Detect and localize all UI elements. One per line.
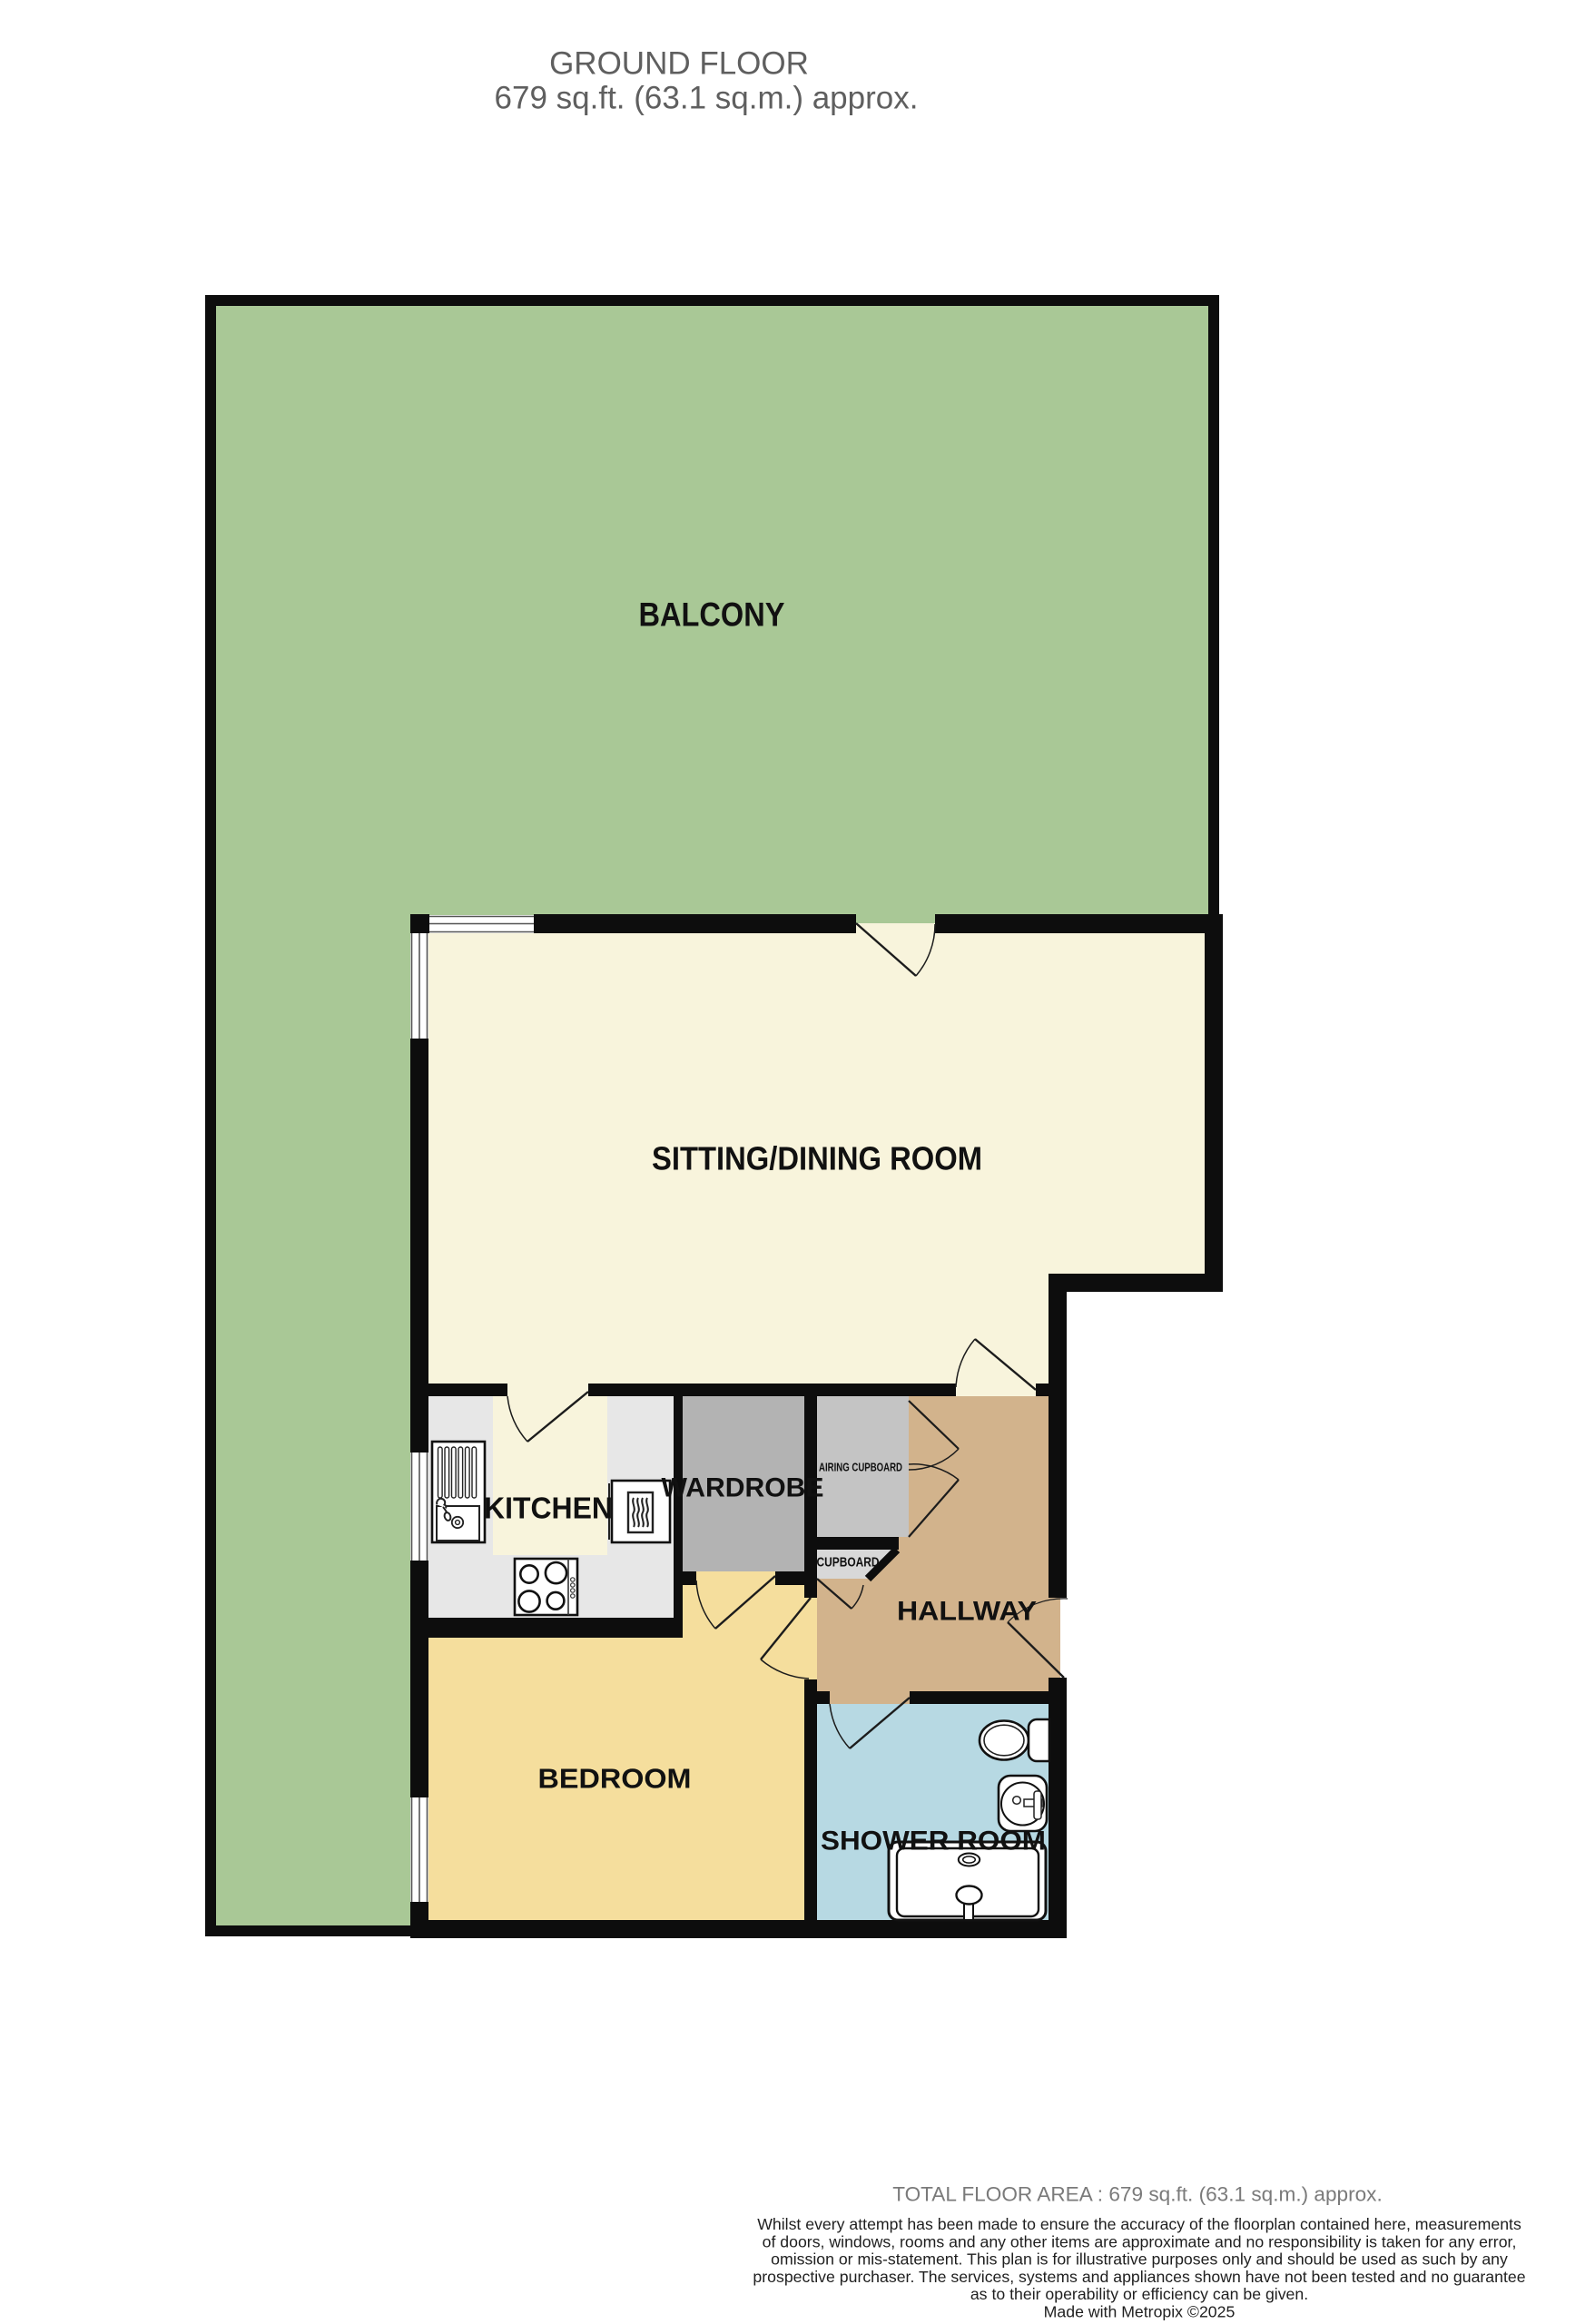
svg-text:HALLWAY: HALLWAY bbox=[897, 1597, 1037, 1627]
svg-text:BEDROOM: BEDROOM bbox=[538, 1763, 692, 1795]
svg-text:KITCHEN: KITCHEN bbox=[484, 1492, 613, 1525]
svg-text:Made with Metropix ©2025: Made with Metropix ©2025 bbox=[1044, 2303, 1236, 2321]
svg-text:GROUND FLOOR: GROUND FLOOR bbox=[549, 46, 809, 82]
svg-text:SHOWER ROOM: SHOWER ROOM bbox=[821, 1827, 1046, 1856]
svg-text:679 sq.ft. (63.1 sq.m.) approx: 679 sq.ft. (63.1 sq.m.) approx. bbox=[495, 81, 919, 116]
svg-text:CUPBOARD: CUPBOARD bbox=[817, 1555, 880, 1571]
svg-text:Whilst every attempt has been: Whilst every attempt has been made to en… bbox=[757, 2215, 1521, 2233]
svg-text:TOTAL FLOOR AREA : 679 sq.ft.: TOTAL FLOOR AREA : 679 sq.ft. (63.1 sq.m… bbox=[892, 2183, 1383, 2206]
svg-text:prospective purchaser. The ser: prospective purchaser. The services, sys… bbox=[753, 2268, 1525, 2286]
svg-text:omission or mis-statement. Thi: omission or mis-statement. This plan is … bbox=[771, 2250, 1508, 2269]
svg-text:BALCONY: BALCONY bbox=[639, 596, 785, 634]
svg-text:as to their operability or eff: as to their operability or efficiency ca… bbox=[970, 2285, 1308, 2303]
svg-text:AIRING CUPBOARD: AIRING CUPBOARD bbox=[819, 1461, 902, 1474]
svg-text:WARDROBE: WARDROBE bbox=[662, 1473, 824, 1503]
svg-text:of doors, windows, rooms and a: of doors, windows, rooms and any other i… bbox=[763, 2232, 1517, 2250]
svg-text:SITTING/DINING ROOM: SITTING/DINING ROOM bbox=[652, 1140, 982, 1177]
